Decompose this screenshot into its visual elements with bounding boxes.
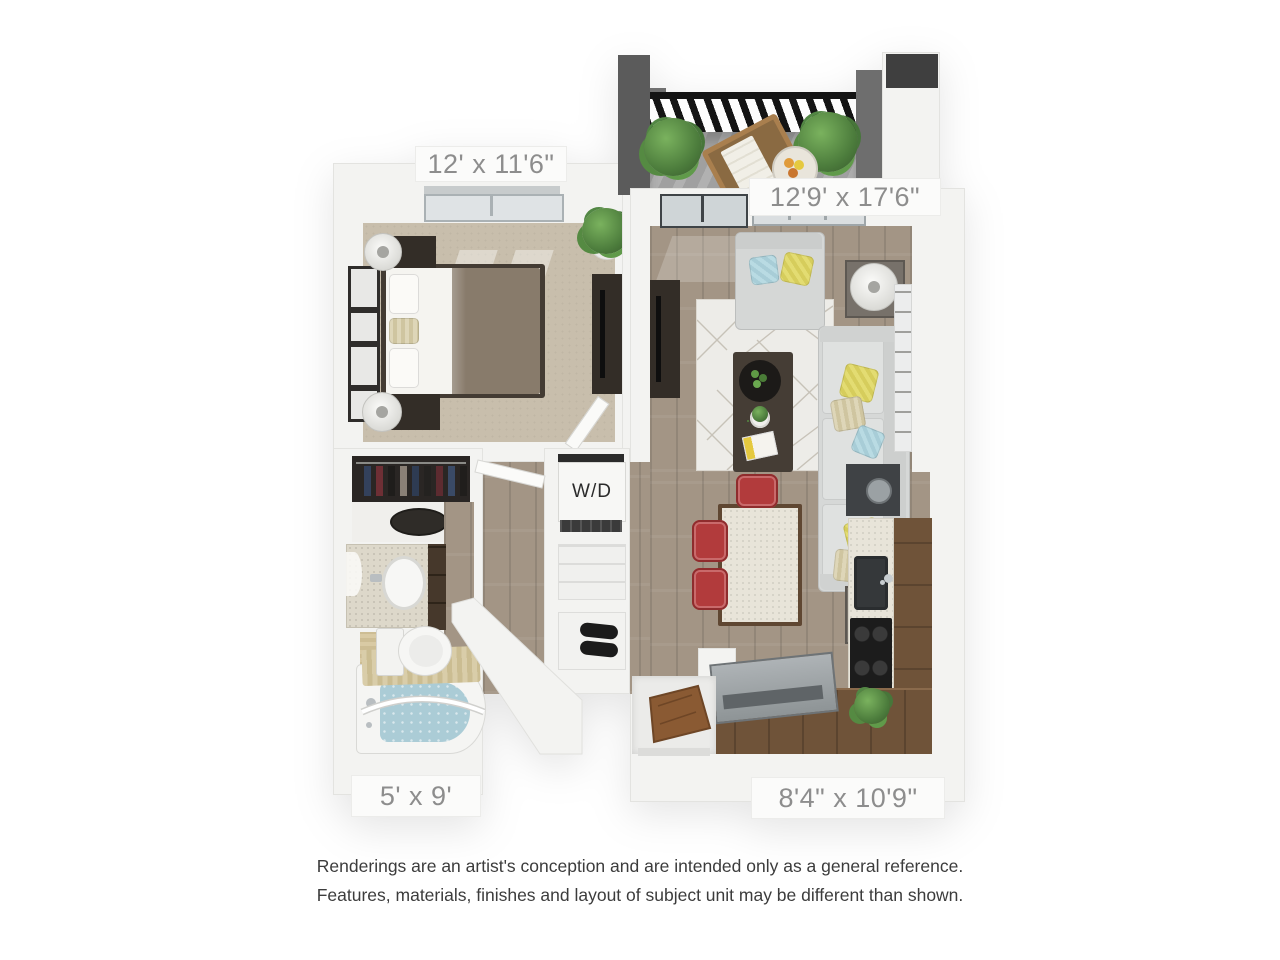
hall-diagonal-wall <box>452 598 582 754</box>
entry-door <box>650 686 710 742</box>
bathroom-door <box>475 460 545 488</box>
floorplan-canvas: W/D 12' x 11'6" 12'9' x 17'6" 5' x 9' 8'… <box>0 0 1280 960</box>
floor-plan: W/D 12' x 11'6" 12'9' x 17'6" 5' x 9' 8'… <box>0 0 1280 960</box>
overlay-shapes <box>0 0 1280 960</box>
shower-curtain-rod-highlight <box>362 699 484 712</box>
disclaimer-line-1: Renderings are an artist's conception an… <box>0 852 1280 881</box>
disclaimer: Renderings are an artist's conception an… <box>0 852 1280 910</box>
disclaimer-line-2: Features, materials, finishes and layout… <box>0 881 1280 910</box>
